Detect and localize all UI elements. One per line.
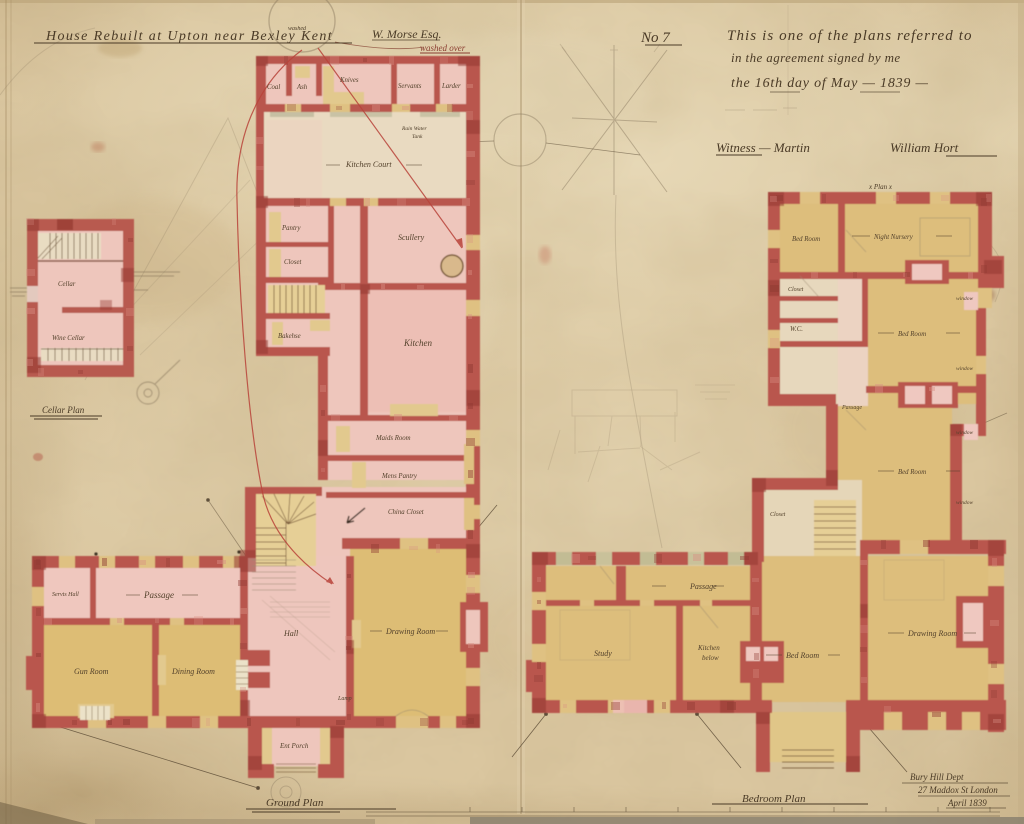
svg-text:Hall: Hall	[283, 629, 299, 638]
svg-text:Ash: Ash	[296, 84, 308, 91]
svg-text:in the agreement signed by me: in the agreement signed by me	[731, 50, 901, 65]
svg-text:No 7: No 7	[640, 30, 671, 46]
svg-text:William Hort: William Hort	[890, 140, 959, 155]
svg-text:window: window	[956, 500, 973, 506]
svg-text:Witness — Martin: Witness — Martin	[716, 140, 810, 155]
svg-text:Gun Room: Gun Room	[74, 667, 109, 676]
svg-text:Mens Pantry: Mens Pantry	[381, 473, 418, 480]
svg-text:Servants: Servants	[398, 83, 422, 90]
svg-text:Passage: Passage	[841, 405, 862, 411]
svg-text:window: window	[956, 366, 973, 372]
svg-text:Servts Hall: Servts Hall	[52, 592, 79, 598]
svg-text:Larder: Larder	[441, 83, 461, 90]
svg-text:Wine Cellar: Wine Cellar	[52, 335, 85, 342]
svg-text:Kitchen Court: Kitchen Court	[345, 160, 392, 169]
svg-text:Scullery: Scullery	[398, 233, 425, 242]
svg-text:Study: Study	[594, 649, 612, 658]
svg-text:Cellar Plan: Cellar Plan	[42, 405, 85, 415]
svg-text:China Closet: China Closet	[388, 509, 425, 516]
svg-text:Tank: Tank	[412, 134, 423, 140]
svg-text:below: below	[702, 654, 719, 662]
svg-text:the 16th day of May — 1839 —: the 16th day of May — 1839 —	[731, 76, 929, 91]
svg-text:Bury Hill Dept: Bury Hill Dept	[910, 772, 964, 782]
svg-text:W. Morse Esq.: W. Morse Esq.	[372, 27, 442, 41]
svg-text:Bed Room: Bed Room	[792, 236, 820, 243]
svg-text:washed over: washed over	[420, 43, 466, 53]
svg-text:W.C.: W.C.	[790, 326, 803, 333]
svg-text:Passage: Passage	[143, 590, 174, 600]
svg-text:x Plan x: x Plan x	[868, 183, 893, 191]
svg-text:Dining Room: Dining Room	[171, 667, 215, 676]
svg-text:Drawing Room: Drawing Room	[385, 627, 435, 636]
svg-text:Night Nursery: Night Nursery	[873, 234, 914, 241]
svg-text:Cellar: Cellar	[58, 281, 76, 288]
svg-text:Lamp: Lamp	[337, 696, 352, 702]
svg-text:Bed Room: Bed Room	[898, 331, 926, 338]
svg-text:Closet: Closet	[788, 287, 804, 293]
svg-text:Maids Room: Maids Room	[375, 435, 411, 442]
svg-text:Bakehse: Bakehse	[278, 333, 301, 340]
svg-text:Coal: Coal	[267, 84, 280, 91]
svg-text:washed: washed	[288, 26, 307, 32]
svg-text:Kitchen: Kitchen	[403, 338, 432, 348]
svg-text:27 Maddox St London: 27 Maddox St London	[918, 785, 998, 795]
svg-text:Knives: Knives	[339, 77, 359, 84]
svg-text:Ground Plan: Ground Plan	[266, 797, 324, 809]
svg-text:Bed Room: Bed Room	[898, 469, 926, 476]
svg-text:Bedroom Plan: Bedroom Plan	[742, 793, 806, 805]
svg-text:Pantry: Pantry	[281, 225, 301, 232]
svg-text:Drawing Room: Drawing Room	[907, 629, 957, 638]
svg-text:Rain Water: Rain Water	[401, 126, 428, 132]
svg-text:window: window	[956, 296, 973, 302]
svg-text:April 1839: April 1839	[947, 798, 987, 808]
svg-text:Closet: Closet	[284, 259, 302, 266]
svg-text:window: window	[956, 430, 973, 436]
svg-text:This is one of the plans refer: This is one of the plans referred to	[727, 28, 973, 44]
svg-text:Bed Room: Bed Room	[786, 651, 819, 660]
svg-text:Closet: Closet	[770, 512, 786, 518]
svg-text:Ent Porch: Ent Porch	[279, 742, 309, 750]
svg-text:Passage: Passage	[689, 582, 717, 591]
svg-text:Kitchen: Kitchen	[697, 644, 720, 652]
